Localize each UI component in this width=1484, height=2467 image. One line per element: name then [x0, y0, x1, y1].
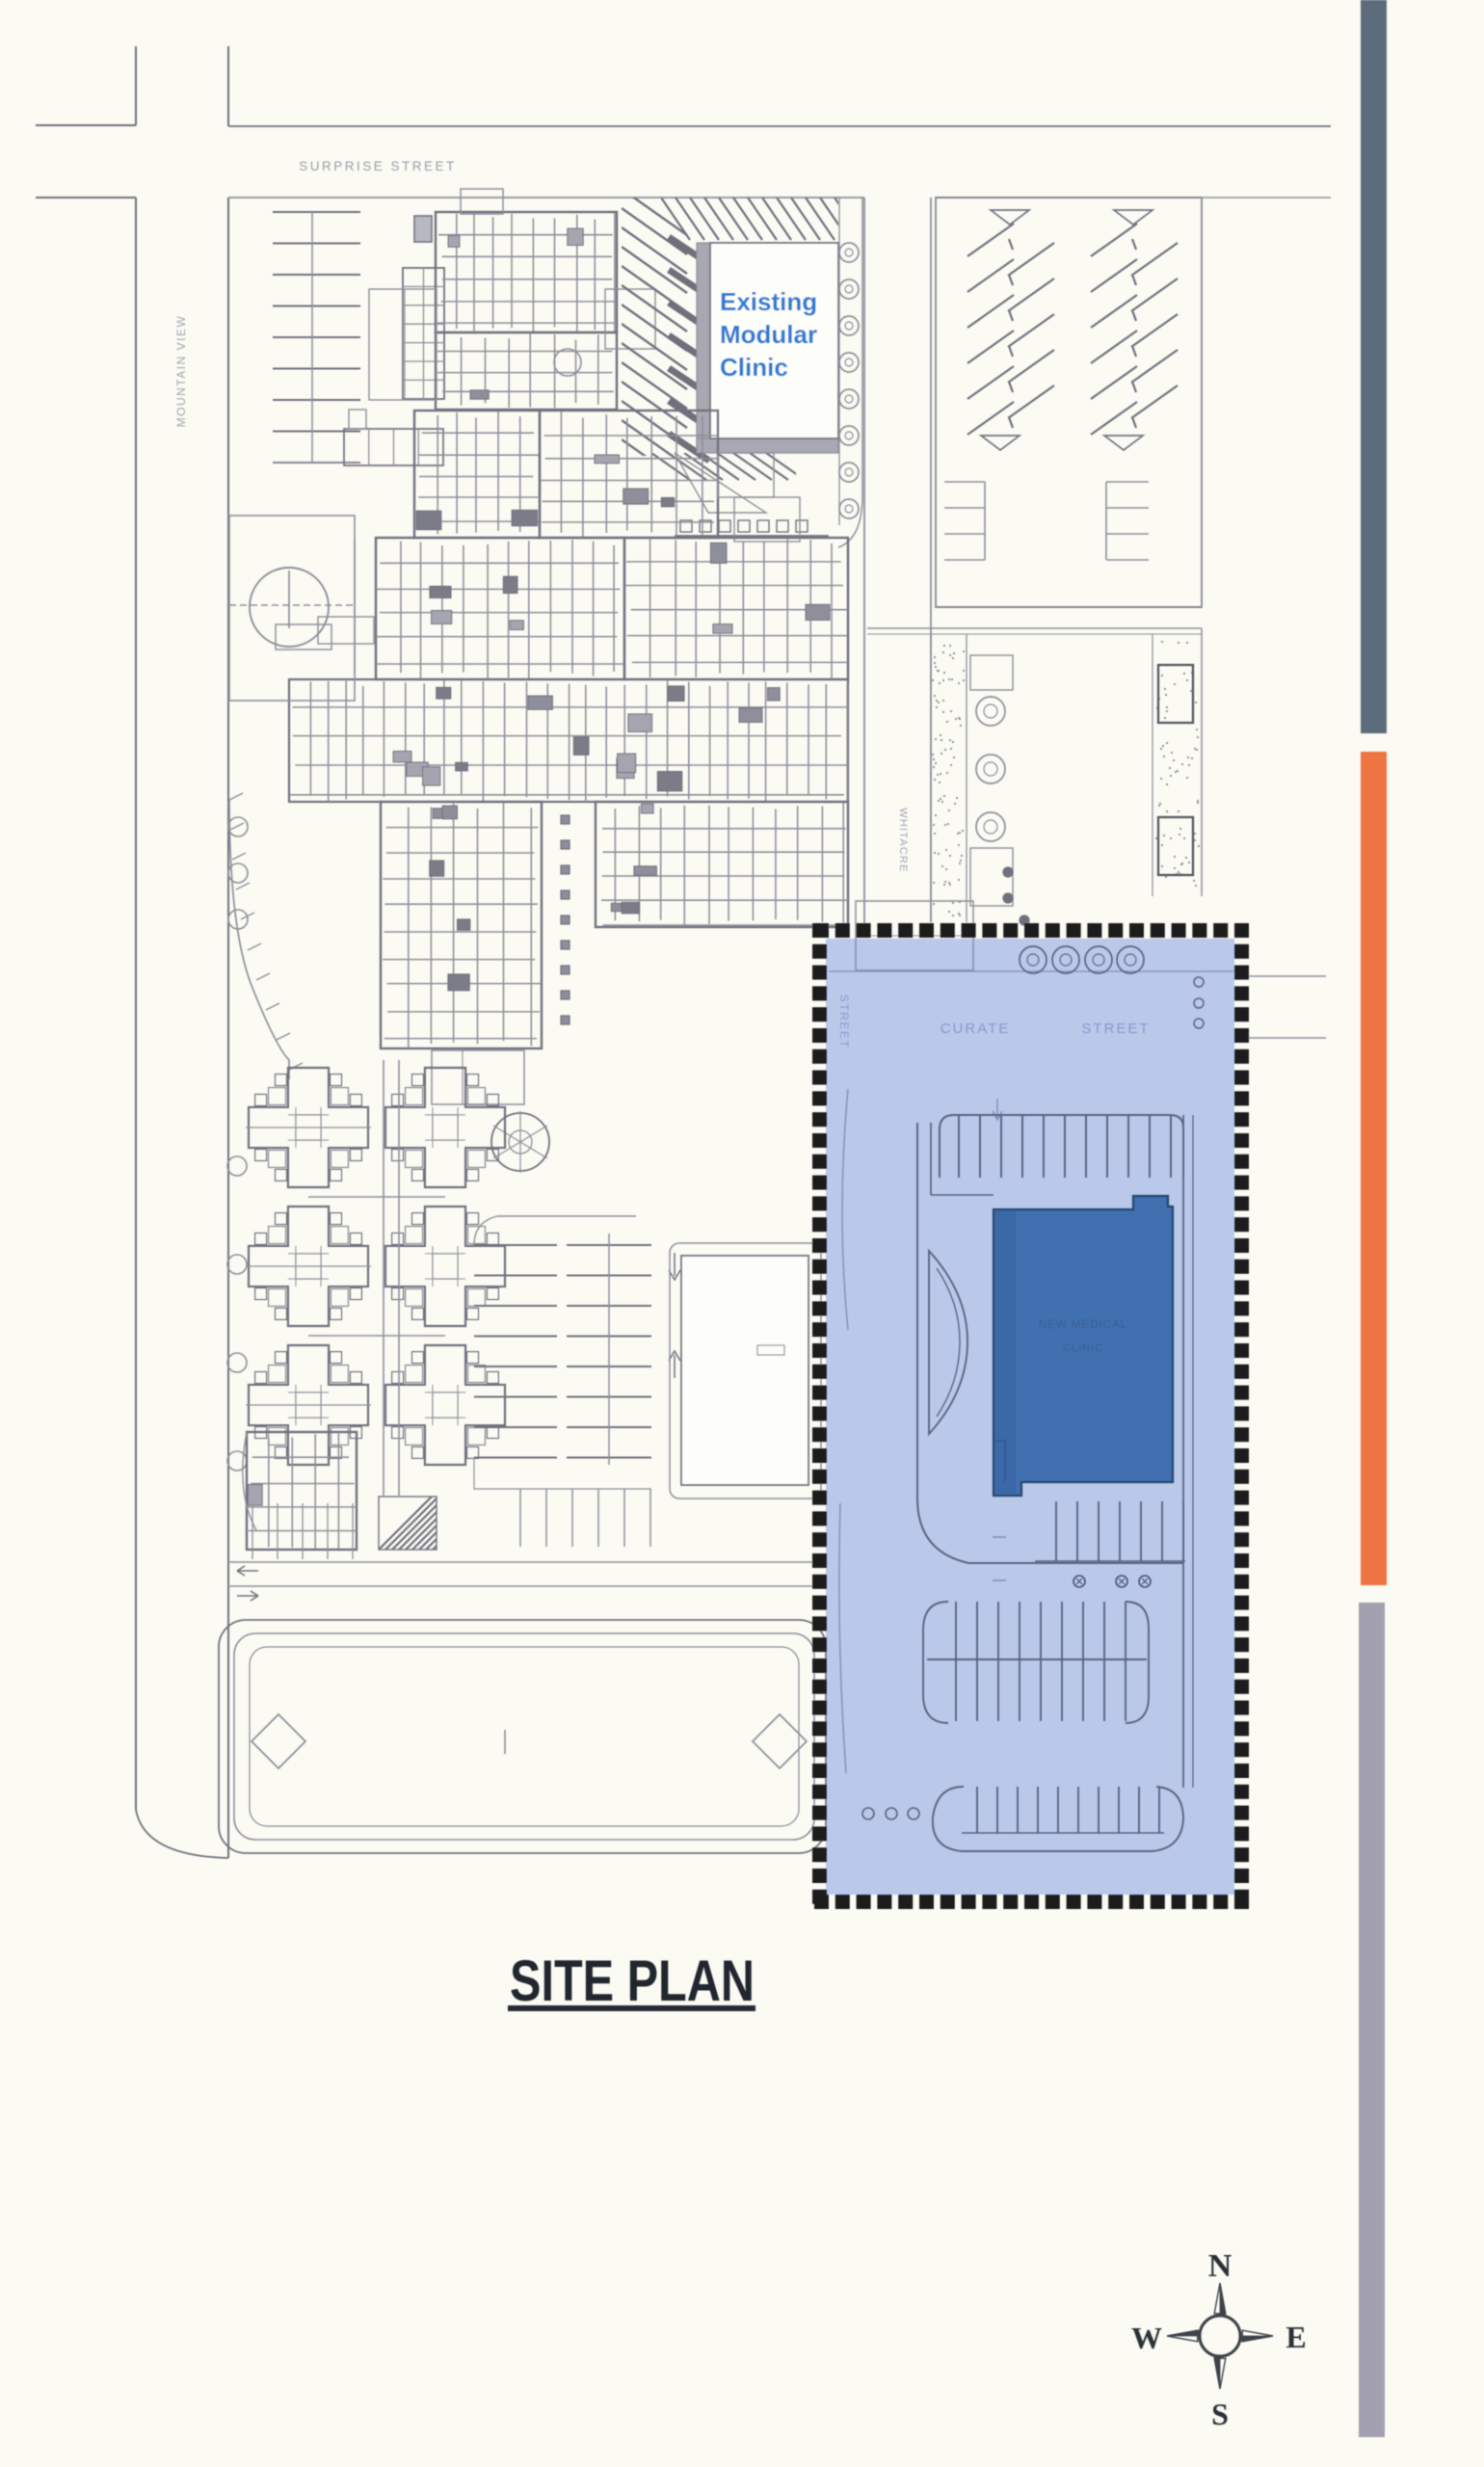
svg-text:SURPRISE STREET: SURPRISE STREET — [299, 159, 457, 173]
svg-text:SITE PLAN: SITE PLAN — [510, 1949, 755, 2013]
svg-text:S: S — [1211, 2397, 1229, 2431]
svg-text:E: E — [1285, 2320, 1306, 2354]
svg-text:WHITACRE: WHITACRE — [897, 808, 909, 872]
svg-text:Modular: Modular — [720, 320, 817, 349]
svg-text:NEW MEDICAL: NEW MEDICAL — [1039, 1319, 1127, 1331]
svg-text:Clinic: Clinic — [720, 353, 788, 382]
svg-text:MOUNTAIN VIEW: MOUNTAIN VIEW — [174, 315, 188, 428]
svg-text:W: W — [1131, 2321, 1162, 2355]
svg-text:N: N — [1208, 2248, 1232, 2284]
svg-text:Existing: Existing — [720, 287, 817, 316]
svg-text:CLINIC: CLINIC — [1063, 1342, 1103, 1354]
